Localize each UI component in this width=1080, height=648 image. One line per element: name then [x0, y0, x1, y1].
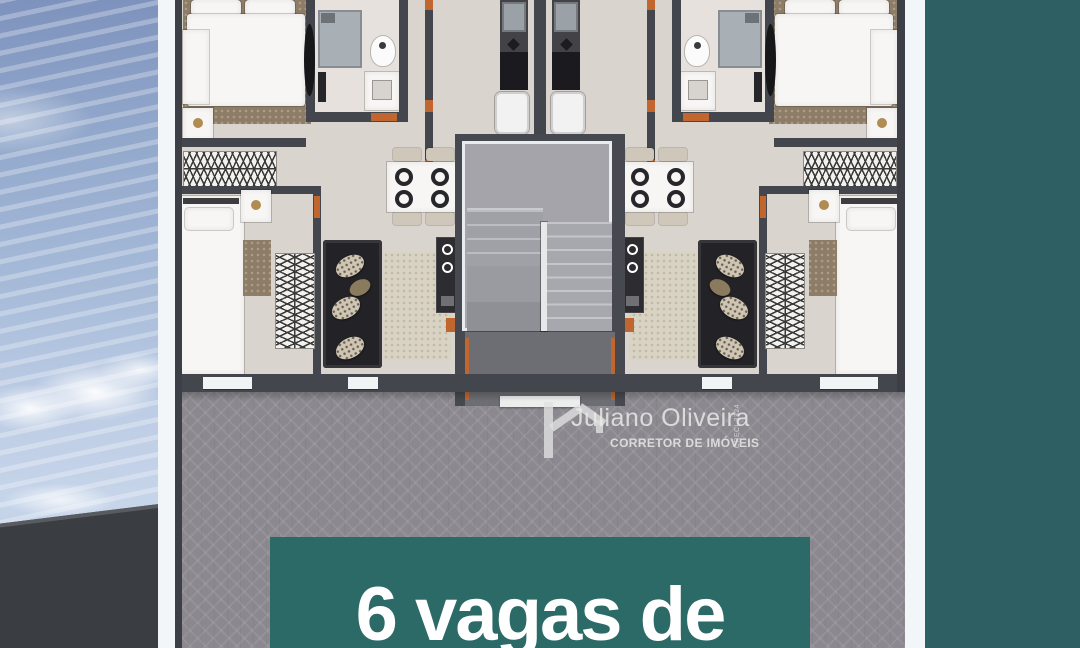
sofa-cushion — [712, 250, 748, 282]
bathroom-sink — [688, 80, 708, 100]
door-frame — [647, 100, 655, 112]
wall — [672, 0, 681, 122]
sink-knob — [442, 244, 453, 255]
sofa — [323, 240, 382, 368]
exterior-wall — [175, 374, 905, 392]
decor-bowl — [819, 200, 829, 210]
sofa-cushion — [716, 292, 752, 324]
shower-head — [321, 13, 335, 23]
bedroom2-rug — [809, 240, 837, 296]
chair — [426, 148, 454, 161]
cooktop — [500, 52, 528, 90]
wardrobe — [765, 253, 805, 349]
stairs-lower-flight — [547, 222, 612, 331]
chair — [659, 212, 687, 225]
counter-sink — [502, 2, 526, 32]
plate — [395, 168, 413, 186]
toilet — [685, 36, 709, 66]
window — [702, 377, 732, 389]
wardrobe — [183, 151, 277, 187]
shower-head — [745, 13, 759, 23]
open-door-leaf — [765, 24, 776, 96]
wall — [647, 0, 655, 172]
plate — [667, 190, 685, 208]
door-frame — [425, 100, 433, 112]
bath-mat — [754, 72, 762, 102]
boundary-wall-right — [897, 0, 905, 392]
bedroom2-rug — [243, 240, 271, 296]
door-frame — [647, 0, 655, 10]
dresser — [183, 30, 209, 104]
floor-plan-image: Juliano Oliveira CORRETOR DE IMÓVEIS CRE… — [175, 0, 905, 648]
promo-banner: 6 vagas de — [270, 537, 810, 648]
counter-sink — [554, 2, 578, 32]
watermark: Juliano Oliveira CORRETOR DE IMÓVEIS CRE… — [530, 394, 770, 468]
dining-table — [387, 162, 460, 212]
plate — [395, 190, 413, 208]
sink-drain — [626, 296, 639, 306]
chair — [626, 212, 654, 225]
chair — [426, 212, 454, 225]
decor-bowl — [193, 118, 203, 128]
sink-knob — [627, 262, 638, 273]
decor-bowl — [251, 200, 261, 210]
stairs-upper-flight — [467, 208, 543, 268]
bath-mat — [318, 72, 326, 102]
boundary-wall-left — [175, 0, 182, 648]
toilet — [371, 36, 395, 66]
toilet-flush — [379, 42, 386, 49]
sink-knob — [627, 244, 638, 255]
promo-banner-text: 6 vagas de — [270, 577, 810, 648]
plate — [431, 190, 449, 208]
wall — [425, 0, 433, 172]
washing-machine — [551, 92, 585, 134]
bathroom-sink — [372, 80, 392, 100]
wardrobe — [803, 151, 897, 187]
white-frame-left — [158, 0, 175, 648]
party-wall — [534, 0, 546, 134]
plate — [631, 168, 649, 186]
broker-name: Juliano Oliveira — [571, 404, 750, 433]
pillow — [847, 208, 895, 230]
headboard — [841, 198, 897, 204]
window — [820, 377, 878, 389]
pillow — [185, 208, 233, 230]
sink-drain — [441, 296, 454, 306]
toilet-flush — [694, 42, 701, 49]
sofa-cushion — [332, 332, 368, 364]
wall — [774, 138, 905, 147]
stair-landing — [467, 266, 543, 302]
plate — [667, 168, 685, 186]
cooktop — [552, 52, 580, 90]
window — [348, 377, 378, 389]
door-frame — [314, 196, 320, 218]
window — [203, 377, 252, 389]
kitchen-sink-unit — [622, 238, 643, 312]
sofa-cushion — [712, 332, 748, 364]
stair-lower-floor — [467, 302, 543, 331]
real-estate-poster: Juliano Oliveira CORRETOR DE IMÓVEIS CRE… — [0, 0, 1080, 648]
door-frame — [371, 113, 397, 121]
chair — [659, 148, 687, 161]
door-frame — [683, 113, 709, 121]
sink-knob — [442, 262, 453, 273]
decor-bowl — [877, 118, 887, 128]
door-frame — [760, 196, 766, 218]
broker-registration: CRECI 3324 — [734, 404, 741, 448]
wall — [175, 138, 306, 147]
chair — [626, 148, 654, 161]
open-door-leaf — [304, 24, 315, 96]
dresser — [871, 30, 897, 104]
entry-door-frame — [624, 318, 634, 332]
chair — [393, 212, 421, 225]
wall — [399, 0, 408, 122]
chair — [393, 148, 421, 161]
plate — [431, 168, 449, 186]
door-frame — [425, 0, 433, 10]
white-frame-right — [905, 0, 925, 648]
dining-table — [620, 162, 693, 212]
sofa — [698, 240, 757, 368]
sofa-cushion — [328, 292, 364, 324]
plate — [631, 190, 649, 208]
wardrobe — [275, 253, 315, 349]
headboard — [183, 198, 239, 204]
washing-machine — [495, 92, 529, 134]
sofa-cushion — [332, 250, 368, 282]
